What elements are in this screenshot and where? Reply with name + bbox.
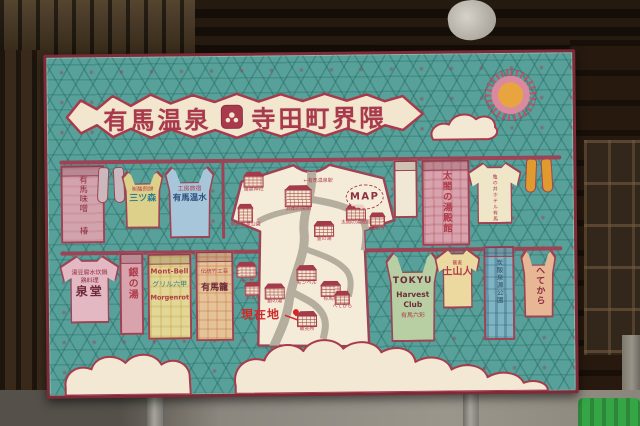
sock-icon [540, 158, 553, 193]
tokyu-line1: TOKYU [393, 276, 433, 288]
map-building-doyamajin: 土山人 [245, 286, 260, 296]
map-badge-text: MAP [350, 191, 380, 202]
montbell-line1: Mont-Bell [150, 267, 188, 275]
map-label: 土山人 [245, 296, 260, 302]
shop-towel-montbell: Mont-Bell グリル六甲 Morgenrot [147, 253, 192, 339]
ginnoyu-text: 銀の湯 [124, 267, 139, 300]
kobo-name: 有馬温水 [173, 193, 207, 204]
shop-shirt-tokyu: TOKYU Harvest Club 有馬六彩 [385, 252, 440, 343]
hetekara-text: へてから [533, 266, 545, 306]
lattice-panel-right [584, 140, 640, 355]
map-badge: MAP [346, 184, 384, 209]
station-direction-note: ←有馬温泉駅 [304, 177, 333, 184]
miso-towel-text: 有馬味噌 [76, 175, 88, 213]
hanging-pole [221, 161, 225, 239]
current-location-text: 現在地 [241, 305, 280, 322]
map-label: モンベル [297, 281, 317, 287]
shop-towel-tansan-park: 炭酸泉源公園 [483, 246, 515, 340]
map-building-hyoe: 兵衛向陽閣 [285, 189, 312, 207]
montbell-line2: グリル六甲 [152, 279, 187, 289]
map-building-kinnoyu: 金の湯 [314, 225, 334, 237]
map-building-ginnoyu: 銀の湯 [265, 287, 285, 299]
tansan-text: 炭酸泉源公園 [494, 259, 504, 304]
small-cloud [431, 114, 497, 140]
map-label: 湯泉神社 [244, 187, 264, 193]
bottom-left-cloud [65, 354, 191, 395]
map-signboard: 有馬温泉 寺田町界隈 有馬味噌 椿 炭酸煎餅 三ツ森 [43, 49, 579, 399]
map-building-gosho-park: 御所泉源公園 [238, 208, 253, 223]
map-annotations: 湯泉神社 御所泉源公園 兵衛向陽閣 金の湯 太閤の湯殿館 温泉寺 三ツ森 モンベ… [227, 154, 399, 354]
shop-shirt-kamenoi: 亀の井ホテル有馬 [467, 162, 522, 225]
sign-title: 有馬温泉 寺田町界隈 [73, 96, 417, 138]
map-building-hetekara: へてから [335, 295, 350, 305]
map-label: へてから [333, 305, 353, 311]
montbell-line3: Morgenrot [150, 293, 189, 301]
kamenoi-text: 亀の井ホテル有馬 [491, 174, 498, 222]
taiko-towel-text: 太閤の湯殿館 [438, 171, 453, 234]
map-building-taiko-yudonokan: 太閤の湯殿館 [346, 208, 366, 220]
shop-shirt-hetekara: へてから [520, 249, 557, 317]
onsen-crest-icon [220, 105, 242, 129]
mitsumori-name: 三ツ森 [129, 193, 156, 205]
plain-white-towel [393, 160, 418, 218]
map-label: 兵衛向陽閣 [286, 207, 311, 213]
tokyu-line2: Harvest Club [386, 290, 440, 309]
doyamajin-name: 土山人 [442, 267, 472, 280]
map-label: 販売所 [300, 327, 315, 333]
shop-shirt-doyamajin: 蕎麦 土山人 [434, 248, 481, 308]
map-building-onsenji: 温泉寺 [370, 216, 385, 226]
wooden-wall-left [0, 50, 48, 426]
map-building-tosen-shrine: 湯泉神社 [243, 175, 263, 187]
title-teradacho: 寺田町界隈 [251, 98, 386, 134]
shop-towel-taiko: 太閤の湯殿館 [421, 159, 470, 245]
map-label: 温泉寺 [370, 226, 385, 232]
map-building-montbell: モンベル [296, 269, 316, 281]
miso-towel-text2: 椿 [77, 226, 89, 236]
shop-shirt-kobo: 工房旅宿 有馬温水 [164, 166, 215, 239]
shop-towel-ginnoyu: 銀の湯 [119, 253, 144, 335]
map-label: 太閤の湯殿館 [341, 220, 371, 226]
arimakago-subtitle: 伝統竹工芸 [201, 267, 229, 275]
green-bin [578, 398, 640, 426]
map-label: 銀の湯 [267, 299, 282, 305]
sun-icon [484, 69, 537, 122]
title-arima-onsen: 有馬温泉 [103, 100, 211, 136]
sock-icon [97, 167, 109, 203]
photo-of-map-signboard: 有馬温泉 寺田町界隈 有馬味噌 椿 炭酸煎餅 三ツ森 [0, 0, 640, 426]
shop-shirt-mitsumori: 炭酸煎餅 三ツ森 [121, 171, 164, 229]
map-building-uriba: 販売所 [297, 315, 317, 327]
map-label: 金の湯 [317, 237, 332, 243]
map-label: 御所泉源公園 [230, 223, 260, 229]
sendo-name: 泉堂 [76, 284, 104, 299]
tokyu-line3: 有馬六彩 [401, 312, 425, 320]
orange-socks [525, 158, 552, 192]
arimakago-name: 有馬籠 [201, 280, 228, 293]
map-building-mitsumori: 三ツ森 [236, 266, 256, 278]
shop-towel-arimakago: 伝統竹工芸 有馬籠 [195, 251, 234, 341]
sock-icon [525, 158, 537, 192]
shop-shirt-sendo: 湯豆腐水炊鍋 鶏料理 泉堂 [59, 255, 120, 324]
